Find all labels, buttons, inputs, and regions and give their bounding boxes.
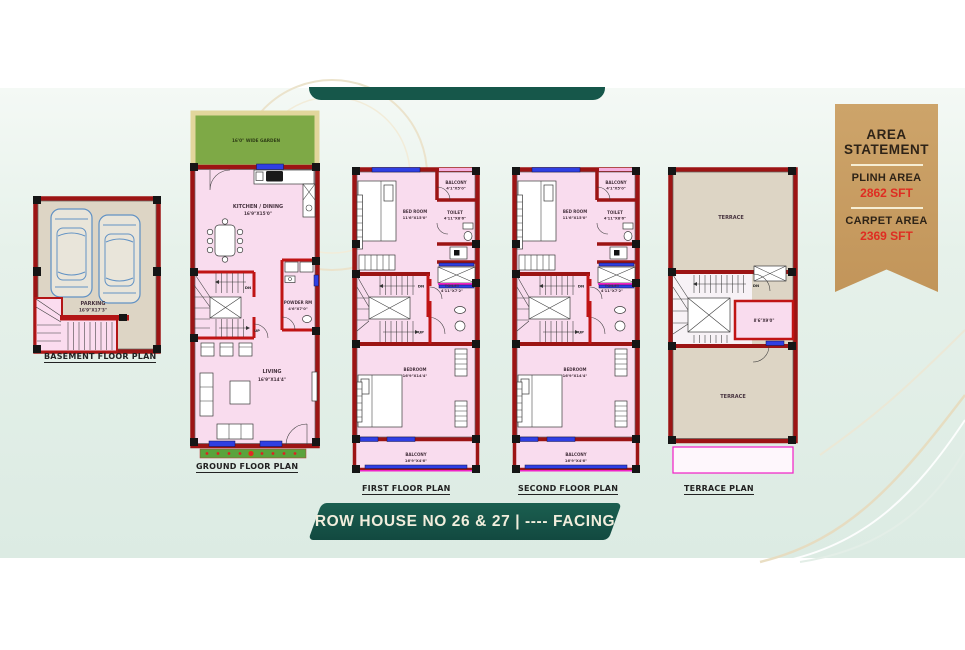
stairs-up-label: UP xyxy=(418,331,424,335)
stairs-dn-label: DN xyxy=(753,284,759,288)
bedroom-top-dim: 11'6"X15'0" xyxy=(563,216,588,220)
ground-floor-plan: 16'0" WIDE GARDEN KITCHEN / DINING 16'9"… xyxy=(190,107,320,459)
area-statement-title-line1: AREA xyxy=(835,104,938,142)
toilet-mid-dim: 4'11"X7'2" xyxy=(441,289,463,293)
toilet-mid-label: TOILET xyxy=(445,284,460,288)
bedroom-bottom-dim: 16'9"X14'4" xyxy=(403,374,428,378)
carpet-area-value: 2369 SFT xyxy=(835,229,938,243)
terrace-upper-label: TERRACE xyxy=(718,215,744,221)
kitchen-label: KITCHEN / DINING xyxy=(233,204,283,210)
kitchen-dim: 16'9"X15'0" xyxy=(244,211,272,217)
ribbon-divider xyxy=(851,207,923,209)
toilet-top-label: TOILET xyxy=(447,210,463,215)
banner-text: ROW HOUSE NO 26 & 27 | ---- FACING xyxy=(309,503,621,540)
terrace-plan-label: TERRACE PLAN xyxy=(684,484,754,495)
toilet-mid-label: TOILET xyxy=(605,284,620,288)
page: AREA STATEMENT PLINH AREA 2862 SFT CARPE… xyxy=(0,0,965,650)
ground-plan-label: GROUND FLOOR PLAN xyxy=(196,462,298,473)
balcony-bottom-label: BALCONY xyxy=(565,452,586,457)
toilet-top-label: TOILET xyxy=(607,210,623,215)
headroom-dim: 8'6"X9'0" xyxy=(754,318,775,323)
parking-dim: 16'9"X17'3" xyxy=(79,308,107,314)
powder-dim: 4'6"X7'0" xyxy=(288,307,308,311)
bedroom-bottom-dim: 16'9"X14'4" xyxy=(563,374,588,378)
bedroom-top-label: BED ROOM xyxy=(403,209,427,214)
area-statement-ribbon: AREA STATEMENT PLINH AREA 2862 SFT CARPE… xyxy=(835,104,938,292)
carpet-area-label: CARPET AREA xyxy=(835,215,938,227)
bed xyxy=(357,181,396,270)
terrace-stairs xyxy=(671,266,796,362)
bed xyxy=(517,181,556,270)
balcony-bottom-dim: 16'9"X4'6" xyxy=(405,459,427,463)
car-icon xyxy=(99,215,140,303)
bedroom-bottom-label: BEDROOM xyxy=(564,367,587,372)
stairs-up-label: UP xyxy=(578,331,584,335)
stairs-dn-label: DN xyxy=(245,286,251,290)
toilet-top-dim: 4'11"X8'6" xyxy=(444,217,466,221)
bed xyxy=(517,375,562,427)
flower-bed xyxy=(200,449,306,458)
garden-label: 16'0" WIDE GARDEN xyxy=(232,138,281,144)
row-house-banner: ROW HOUSE NO 26 & 27 | ---- FACING xyxy=(309,503,621,540)
living-label: LIVING xyxy=(262,369,281,375)
toilet-top-dim: 4'11"X8'6" xyxy=(604,217,626,221)
balcony-top-label: BALCONY xyxy=(605,180,626,185)
first-plan-label: FIRST FLOOR PLAN xyxy=(362,484,450,495)
terrace-projection xyxy=(673,447,793,473)
terrace-lower-label: TERRACE xyxy=(720,394,746,400)
balcony-bottom-label: BALCONY xyxy=(405,452,426,457)
ribbon-divider xyxy=(851,164,923,166)
powder-label: POWDER RM xyxy=(284,300,312,305)
car-icon xyxy=(51,209,92,297)
bedroom-bottom-label: BEDROOM xyxy=(404,367,427,372)
balcony-top-label: BALCONY xyxy=(445,180,466,185)
parking-label: PARKING xyxy=(81,301,106,307)
basement-floor-plan: PARKING 16'9"X17'3" xyxy=(33,196,161,354)
stairs-dn-label: DN xyxy=(578,285,584,289)
area-statement-title-line2: STATEMENT xyxy=(835,142,938,157)
toilet-mid-dim: 4'11"X7'2" xyxy=(601,289,623,293)
terrace-plan: TERRACE DN 8'6"X9'0" TERRACE xyxy=(668,167,798,477)
living-dim: 16'9"X14'4" xyxy=(258,377,286,383)
bedroom-top-label: BED ROOM xyxy=(563,209,587,214)
second-plan-label: SECOND FLOOR PLAN xyxy=(518,484,618,495)
first-floor-plan: BALCONY 4'1"X5'0" BED ROOM 11'6"X15'0" T… xyxy=(352,167,480,477)
bedroom-top-dim: 11'6"X15'0" xyxy=(403,216,428,220)
top-title-bar xyxy=(309,87,605,100)
basement-plan-label: BASEMENT FLOOR PLAN xyxy=(44,352,156,363)
balcony-top-dim: 4'1"X5'0" xyxy=(446,187,466,191)
plinth-area-value: 2862 SFT xyxy=(835,186,938,200)
second-floor-plan: BALCONY 4'1"X5'0" BED ROOM 11'6"X15'0" T… xyxy=(512,167,640,477)
balcony-top-dim: 4'1"X5'0" xyxy=(606,187,626,191)
stairs-up-label: UP xyxy=(254,329,260,333)
stairs-dn-label: DN xyxy=(418,285,424,289)
plinth-area-label: PLINH AREA xyxy=(835,172,938,184)
balcony-bottom-dim: 16'9"X4'6" xyxy=(565,459,587,463)
bed xyxy=(357,375,402,427)
